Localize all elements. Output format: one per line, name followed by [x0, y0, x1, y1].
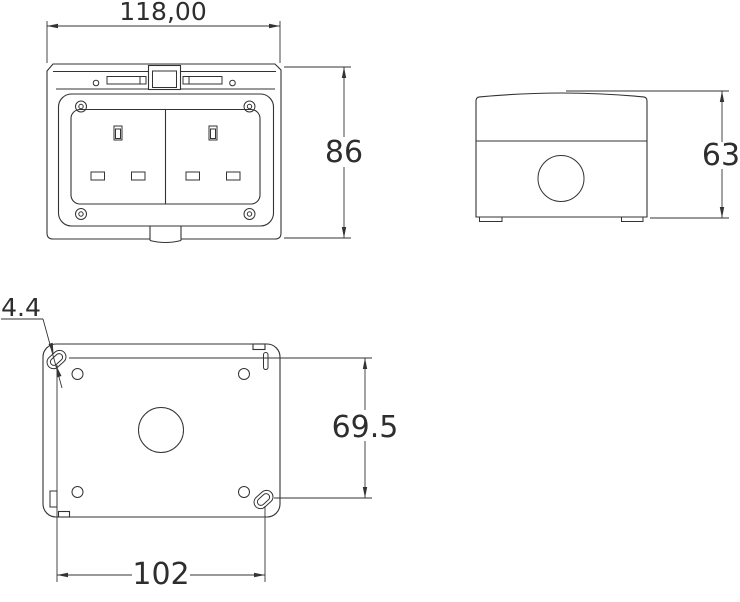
socket-left	[91, 126, 145, 180]
technical-drawing-page: 118,00 86 63 69.5 102	[0, 0, 740, 597]
mounting-slot-bottom-right	[251, 488, 275, 512]
top-edge-notch	[253, 344, 265, 350]
dimension-mount-vertical-spacing: 69.5	[69, 358, 398, 498]
dimension-label-side-depth: 63	[702, 138, 740, 173]
hinge-pin-hole-left	[93, 80, 99, 86]
socket-right	[186, 126, 240, 180]
vertical-slot-top-right	[264, 353, 269, 370]
faceplate-screw-bottom-left	[76, 209, 87, 220]
back-plate-outline	[43, 344, 280, 517]
left-edge-slot	[50, 491, 57, 507]
side-body-outline	[476, 93, 647, 217]
screw-boss-top-right	[239, 369, 250, 380]
lid-latch-tab	[150, 227, 181, 243]
front-view	[47, 64, 281, 243]
dimension-label-mount-horizontal-spacing: 102	[132, 557, 189, 592]
leader-mount-slot-width: 4.4	[1, 293, 62, 388]
dimension-label-front-width: 118,00	[119, 0, 206, 26]
dimension-label-front-height: 86	[325, 135, 363, 170]
lid-hinge-tab	[149, 66, 181, 90]
foot-right	[622, 217, 644, 222]
drawing-canvas: 118,00 86 63 69.5 102	[0, 0, 740, 597]
hinge-pin-hole-right	[230, 80, 236, 86]
live-pin-slot	[91, 172, 105, 180]
cable-entry-knockout-side	[538, 156, 584, 202]
cable-entry-hole	[139, 408, 184, 453]
dimension-label-mount-slot-width: 4.4	[1, 293, 41, 322]
bottom-view	[43, 344, 280, 517]
side-view	[476, 93, 647, 222]
bottom-edge-notch	[59, 512, 70, 518]
neutral-pin-slot	[227, 172, 241, 180]
screw-boss-bottom-right	[239, 487, 250, 498]
lid-outline	[47, 64, 281, 239]
faceplate-screw-bottom-right	[244, 209, 255, 220]
neutral-pin-slot	[132, 172, 146, 180]
dimension-mount-horizontal-spacing: 102	[57, 365, 265, 592]
screw-boss-top-left	[72, 369, 83, 380]
foot-left	[480, 217, 503, 222]
screw-boss-bottom-left	[72, 487, 83, 498]
live-pin-slot	[186, 172, 200, 180]
dimension-side-depth: 63	[566, 91, 740, 218]
dimension-front-height: 86	[284, 67, 363, 238]
dimension-label-mount-vertical-spacing: 69.5	[332, 410, 399, 445]
dimension-front-width: 118,00	[47, 0, 280, 63]
